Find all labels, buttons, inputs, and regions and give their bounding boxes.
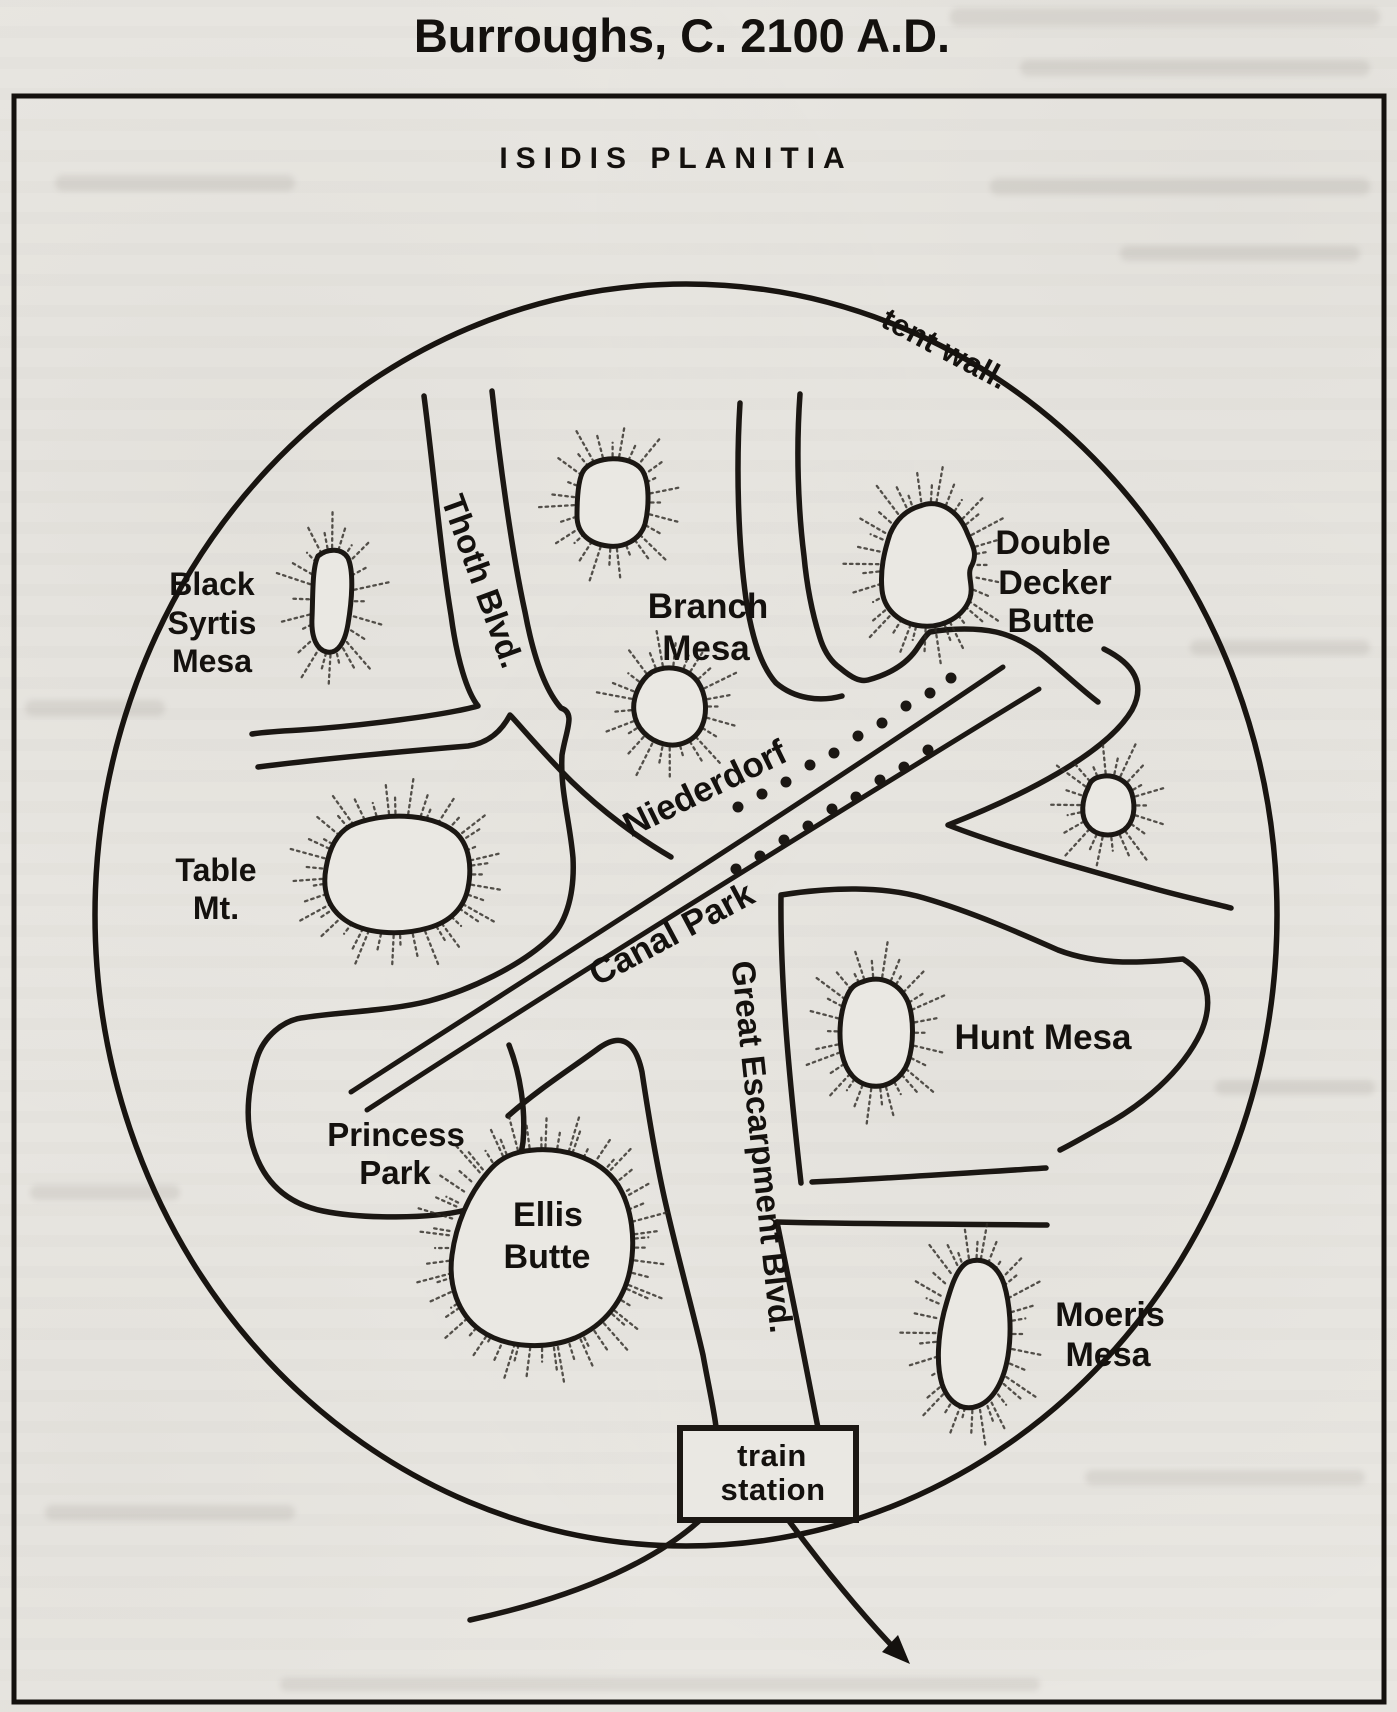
label-black-syrtis-2: Syrtis	[168, 605, 257, 641]
burroughs-map: Burroughs, C. 2100 A.D. ISIDIS PLANITIA …	[0, 0, 1397, 1712]
mesa-hunt	[840, 979, 913, 1086]
label-isidis-planitia: ISIDIS PLANITIA	[499, 142, 852, 175]
label-moeris-2: Mesa	[1065, 1336, 1151, 1374]
label-table-mt-1: Table	[175, 852, 256, 888]
butte-branch-upper	[577, 459, 648, 547]
label-black-syrtis-1: Black	[169, 566, 255, 602]
butte-unnamed-east	[1083, 776, 1134, 835]
label-niederdorf: Niederdorf	[617, 732, 793, 845]
label-ellis-1: Ellis	[513, 1196, 583, 1234]
label-train-station-1: train	[737, 1438, 807, 1473]
label-branch-1: Branch	[648, 587, 769, 626]
label-princess-park-1: Princess	[327, 1116, 465, 1153]
label-double-decker-2: Decker	[998, 564, 1111, 602]
road-thoth-west	[252, 396, 478, 734]
scanned-book-page: Burroughs, C. 2100 A.D. ISIDIS PLANITIA …	[0, 0, 1397, 1712]
mesa-moeris	[938, 1260, 1010, 1407]
label-moeris-1: Moeris	[1055, 1296, 1165, 1334]
map-title: Burroughs, C. 2100 A.D.	[414, 9, 950, 62]
label-branch-2: Mesa	[662, 629, 750, 668]
label-double-decker-3: Butte	[1008, 602, 1095, 640]
label-princess-park-2: Park	[359, 1154, 431, 1191]
label-table-mt-2: Mt.	[193, 890, 239, 926]
mesa-table-mt	[325, 816, 470, 933]
butte-branch-lower	[634, 668, 706, 745]
label-black-syrtis-3: Mesa	[172, 643, 252, 679]
road-east-corridor-lower	[777, 1222, 1047, 1225]
label-ellis-2: Butte	[504, 1238, 591, 1276]
road-east-hook	[948, 649, 1231, 908]
label-train-station-2: station	[720, 1472, 825, 1507]
label-tent-wall: tent wall.	[876, 301, 1014, 397]
butte-double-decker	[881, 504, 974, 627]
label-great-escarpment-blvd: Great Escarpment Blvd.	[724, 959, 800, 1335]
label-double-decker-1: Double	[995, 524, 1110, 562]
label-hunt-mesa: Hunt Mesa	[955, 1018, 1133, 1057]
butte-black-syrtis	[312, 550, 352, 652]
train-track-southeast	[789, 1521, 894, 1648]
road-thoth-east-table-princess-loop	[248, 391, 573, 1217]
road-east-corridor-upper	[812, 1168, 1046, 1182]
